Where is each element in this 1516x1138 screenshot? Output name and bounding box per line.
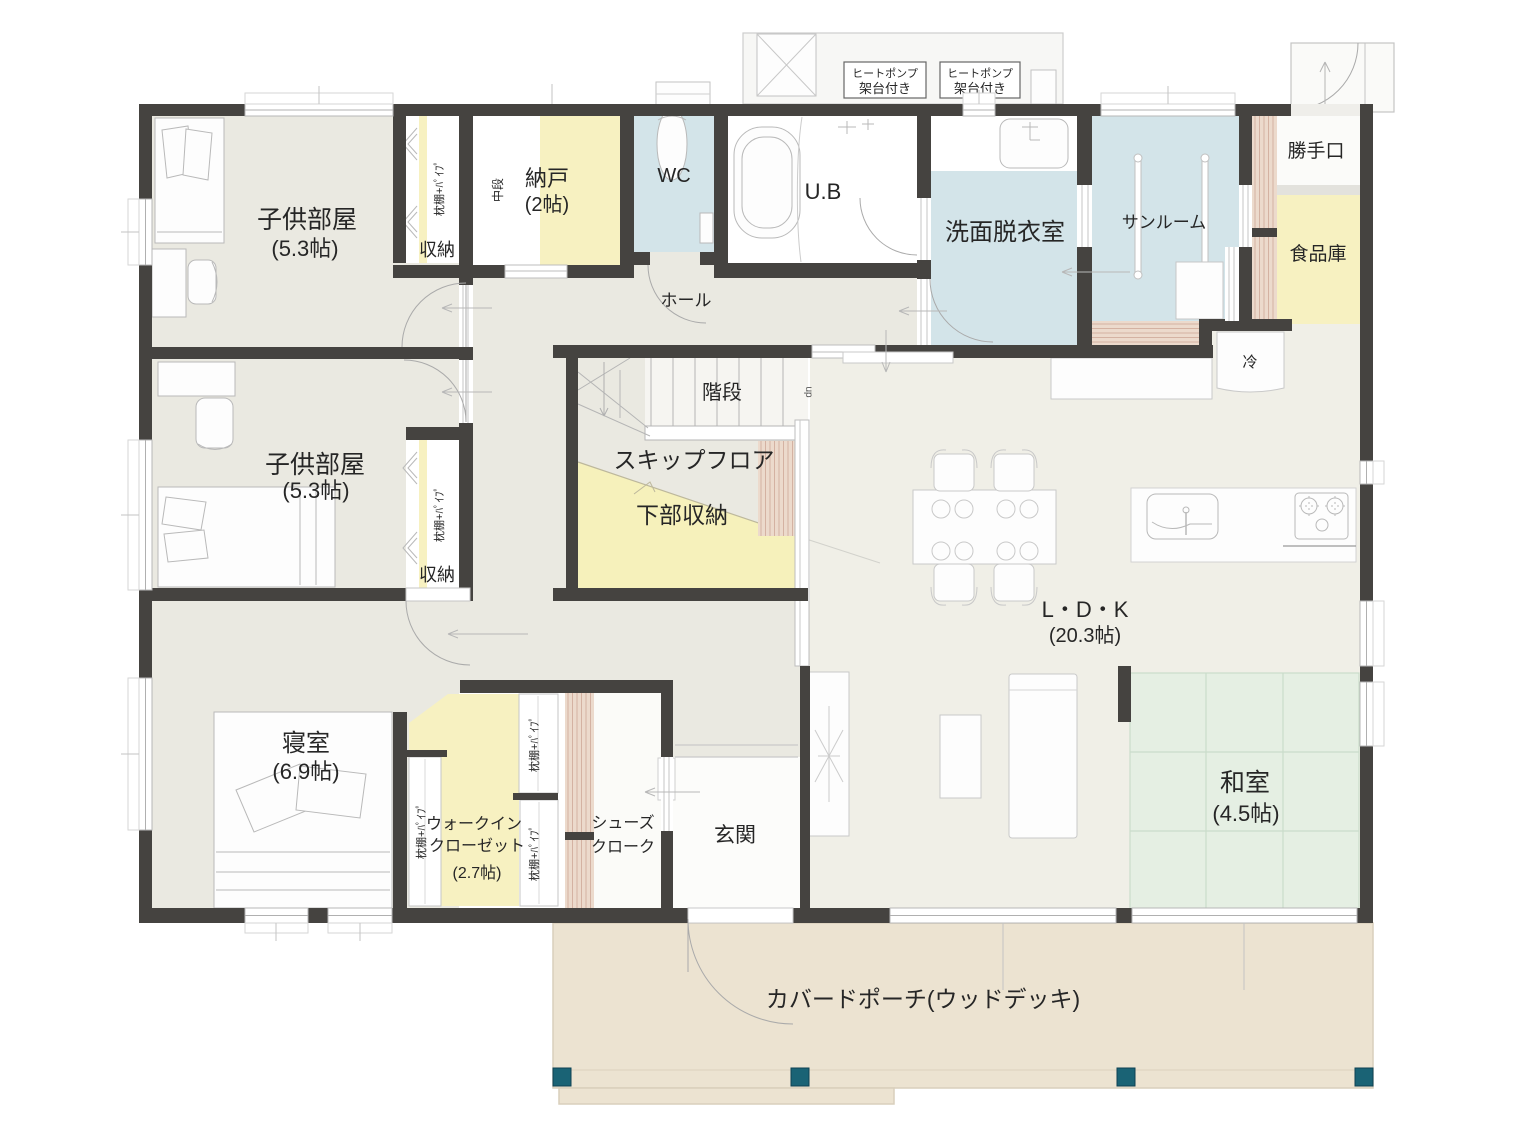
svg-text:U.B: U.B [805,179,842,204]
svg-text:階段: 階段 [702,381,742,404]
svg-text:納戸: 納戸 [525,166,569,191]
svg-text:収納: 収納 [419,565,455,585]
svg-text:食品庫: 食品庫 [1289,243,1346,265]
svg-text:寝室: 寝室 [282,730,330,757]
svg-text:玄関: 玄関 [714,824,756,847]
svg-text:ウォークイン: ウォークイン [426,815,522,833]
svg-text:シューズ: シューズ [591,814,654,832]
svg-text:架台付き: 架台付き [859,81,911,96]
svg-text:枕棚+ﾊﾟｲﾌﾟ: 枕棚+ﾊﾟｲﾌﾟ [432,486,446,542]
svg-text:ホール: ホール [661,291,712,310]
svg-text:WC: WC [657,165,690,187]
svg-text:下部収納: 下部収納 [636,502,728,528]
svg-text:子供部屋: 子供部屋 [257,206,357,234]
svg-text:枕棚+ﾊﾟｲﾌﾟ: 枕棚+ﾊﾟｲﾌﾟ [527,825,541,881]
svg-text:ヒートポンプ: ヒートポンプ [852,67,918,80]
svg-text:洗面脱衣室: 洗面脱衣室 [945,219,1065,246]
svg-text:(20.3帖): (20.3帖) [1049,624,1121,647]
svg-text:(5.3帖): (5.3帖) [271,236,338,261]
svg-text:枕棚+ﾊﾟｲﾌﾟ: 枕棚+ﾊﾟｲﾌﾟ [432,160,446,216]
svg-text:中段: 中段 [490,178,505,202]
svg-text:up: up [803,386,814,398]
svg-text:L・D・K: L・D・K [1042,597,1129,622]
svg-text:(4.5帖): (4.5帖) [1212,801,1279,826]
svg-text:スキップフロア: スキップフロア [614,447,775,473]
svg-text:(6.9帖): (6.9帖) [272,759,339,784]
svg-text:クローゼット: クローゼット [429,837,525,855]
svg-text:クローク: クローク [591,838,655,856]
svg-text:カバードポーチ(ウッドデッキ): カバードポーチ(ウッドデッキ) [766,986,1080,1012]
svg-text:和室: 和室 [1220,769,1270,797]
svg-text:冷: 冷 [1242,354,1257,371]
svg-text:子供部屋: 子供部屋 [265,451,365,479]
svg-text:サンルーム: サンルーム [1122,213,1207,232]
svg-text:勝手口: 勝手口 [1287,140,1344,162]
svg-text:(2.7帖): (2.7帖) [453,864,502,882]
svg-text:ヒートポンプ: ヒートポンプ [947,67,1013,80]
svg-text:(5.3帖): (5.3帖) [282,478,349,503]
svg-text:収納: 収納 [419,240,455,260]
svg-text:枕棚+ﾊﾟｲﾌﾟ: 枕棚+ﾊﾟｲﾌﾟ [527,716,541,772]
svg-text:(2帖): (2帖) [525,193,569,216]
